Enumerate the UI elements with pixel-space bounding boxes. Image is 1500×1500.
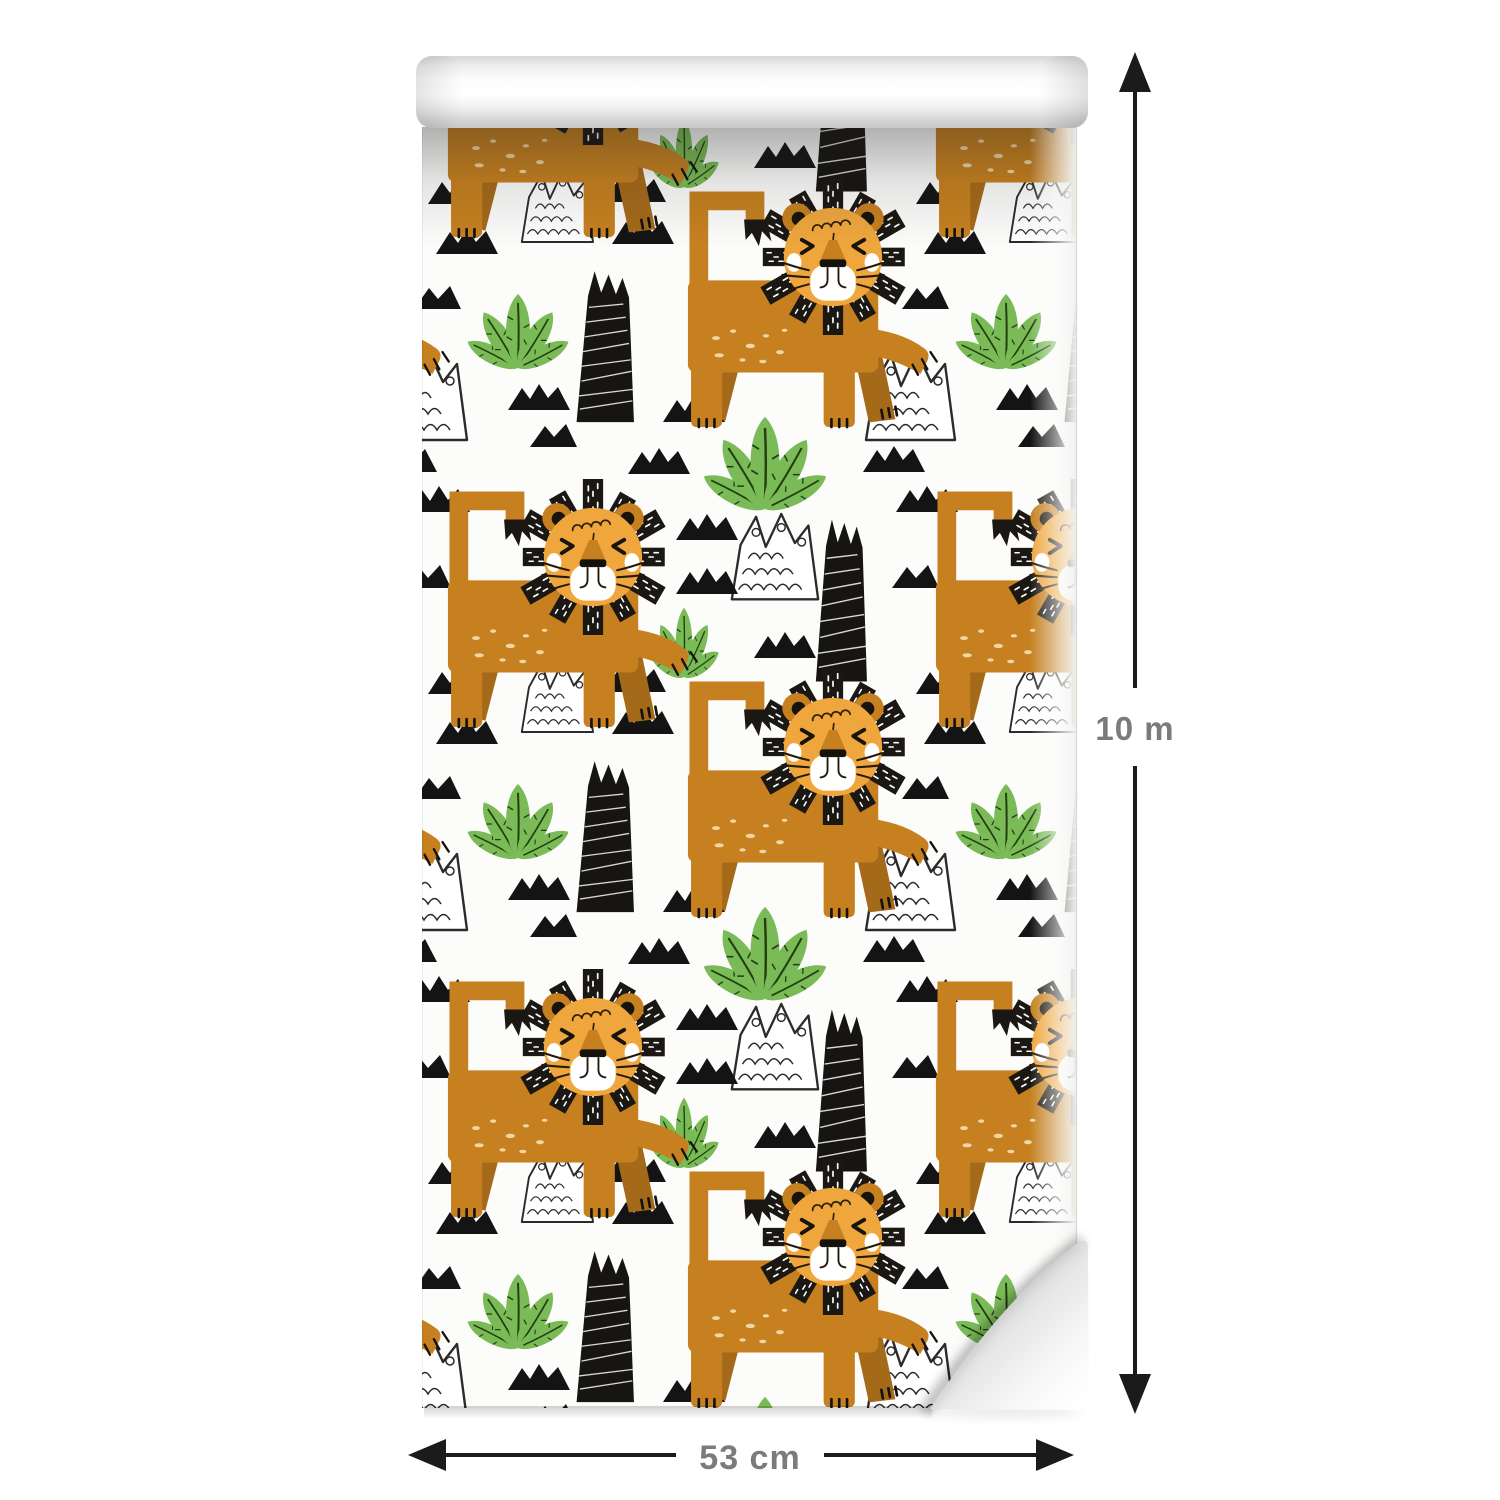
arrow-down-icon	[1119, 1374, 1151, 1414]
wallpaper-product-photo: 10 m 53 cm	[0, 0, 1500, 1500]
wallpaper-sheet	[422, 127, 1077, 1419]
roll-shadow	[422, 127, 1077, 248]
wallpaper-roll-illustration	[0, 0, 1500, 1500]
width-label: 53 cm	[650, 1439, 850, 1478]
arrow-up-icon	[1119, 52, 1151, 92]
roll-cylinder	[416, 56, 1088, 128]
length-label: 10 m	[1035, 710, 1235, 748]
arrow-right-icon	[1036, 1439, 1074, 1471]
arrow-left-icon	[408, 1439, 446, 1471]
